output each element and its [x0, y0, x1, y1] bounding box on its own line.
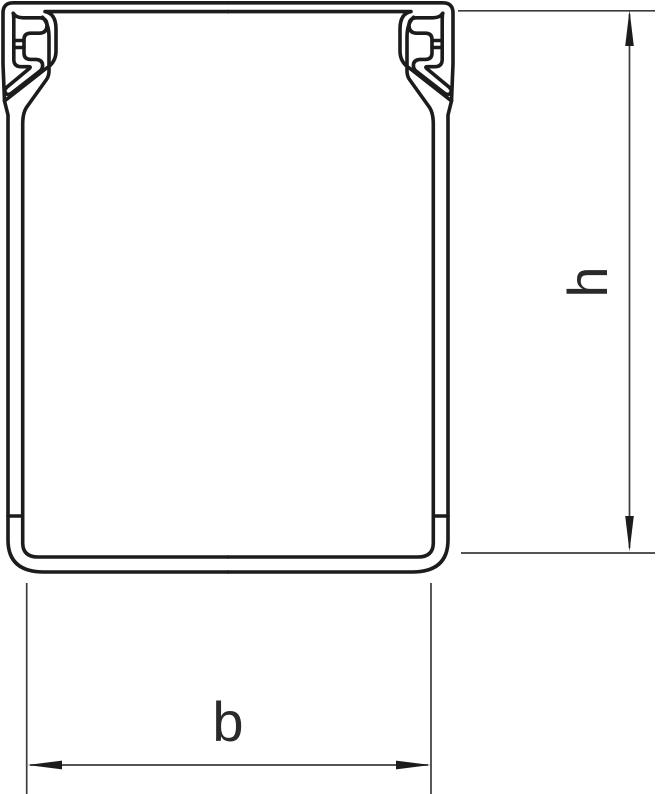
width-label: b	[212, 690, 243, 753]
arrow-down-icon	[625, 516, 634, 552]
drawing-canvas: h b	[0, 0, 657, 794]
arrow-up-icon	[625, 10, 634, 46]
duct-profile	[3, 3, 453, 572]
trunking-cross-section-drawing: h b	[0, 0, 657, 794]
cover-and-wall-outer-contour	[3, 3, 228, 572]
arrow-left-icon	[28, 761, 63, 770]
duct-right-half	[228, 3, 453, 572]
clip-finger	[5, 13, 47, 94]
dimension-arrowheads	[28, 10, 634, 769]
width-dimension	[27, 583, 431, 794]
height-label: h	[556, 266, 619, 297]
wall-inner-contour	[23, 17, 228, 557]
arrow-right-icon	[396, 761, 431, 770]
dimension-labels: h b	[212, 266, 619, 753]
duct-left-half	[3, 3, 228, 572]
clip-barb-and-cap-outer	[5, 12, 229, 101]
